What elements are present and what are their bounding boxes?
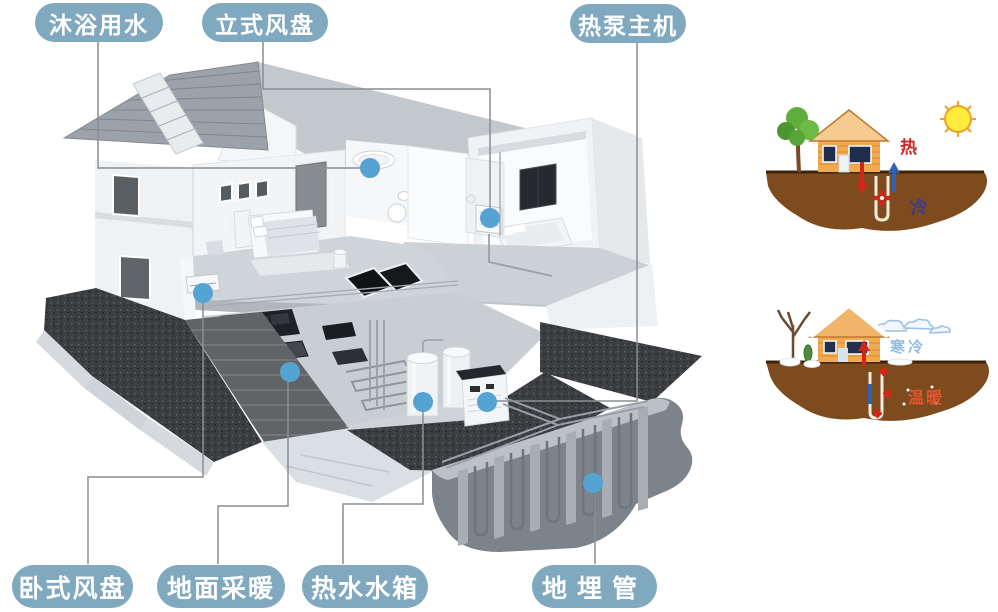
marker-bath-water — [360, 158, 380, 178]
winter-warm-text: 温暖 — [907, 388, 944, 407]
snow-clouds-icon — [874, 319, 950, 333]
marker-horizontal-fan-coil — [193, 283, 213, 303]
sun-icon — [940, 101, 976, 137]
label-buried-pipe: 地埋管 — [532, 565, 657, 608]
label-horizontal-fan-coil: 卧式风盘 — [12, 565, 133, 608]
summer-hot-text: 热 — [900, 137, 917, 158]
washbasin — [388, 204, 406, 222]
marker-hot-water-tank — [413, 392, 433, 412]
diagram-artwork: 热 冷 — [0, 0, 998, 612]
cottage-summer — [810, 110, 888, 172]
shrub-icon — [804, 345, 812, 361]
marker-vertical-fan-coil — [480, 208, 500, 228]
label-bath-water: 沐浴用水 — [35, 3, 163, 42]
winter-illustration: 寒冷 温暖 — [766, 305, 989, 421]
winter-cold-text: 寒冷 — [890, 338, 926, 356]
cottage-winter — [810, 305, 888, 362]
label-vertical-fan-coil: 立式风盘 — [202, 3, 328, 42]
label-heat-pump: 热泵主机 — [570, 4, 686, 43]
ground-source-heat-pump-diagram: 热 冷 — [0, 0, 998, 612]
house-cutaway — [36, 62, 702, 552]
label-floor-heating: 地面采暖 — [157, 565, 285, 608]
marker-floor-heating — [280, 362, 300, 382]
summer-illustration: 热 冷 — [766, 101, 987, 231]
tiled-roof — [64, 62, 268, 154]
marker-buried-pipe — [583, 473, 603, 493]
label-hot-water-tank: 热水水箱 — [302, 565, 428, 608]
bathroom — [346, 140, 410, 226]
marker-heat-pump — [477, 392, 497, 412]
